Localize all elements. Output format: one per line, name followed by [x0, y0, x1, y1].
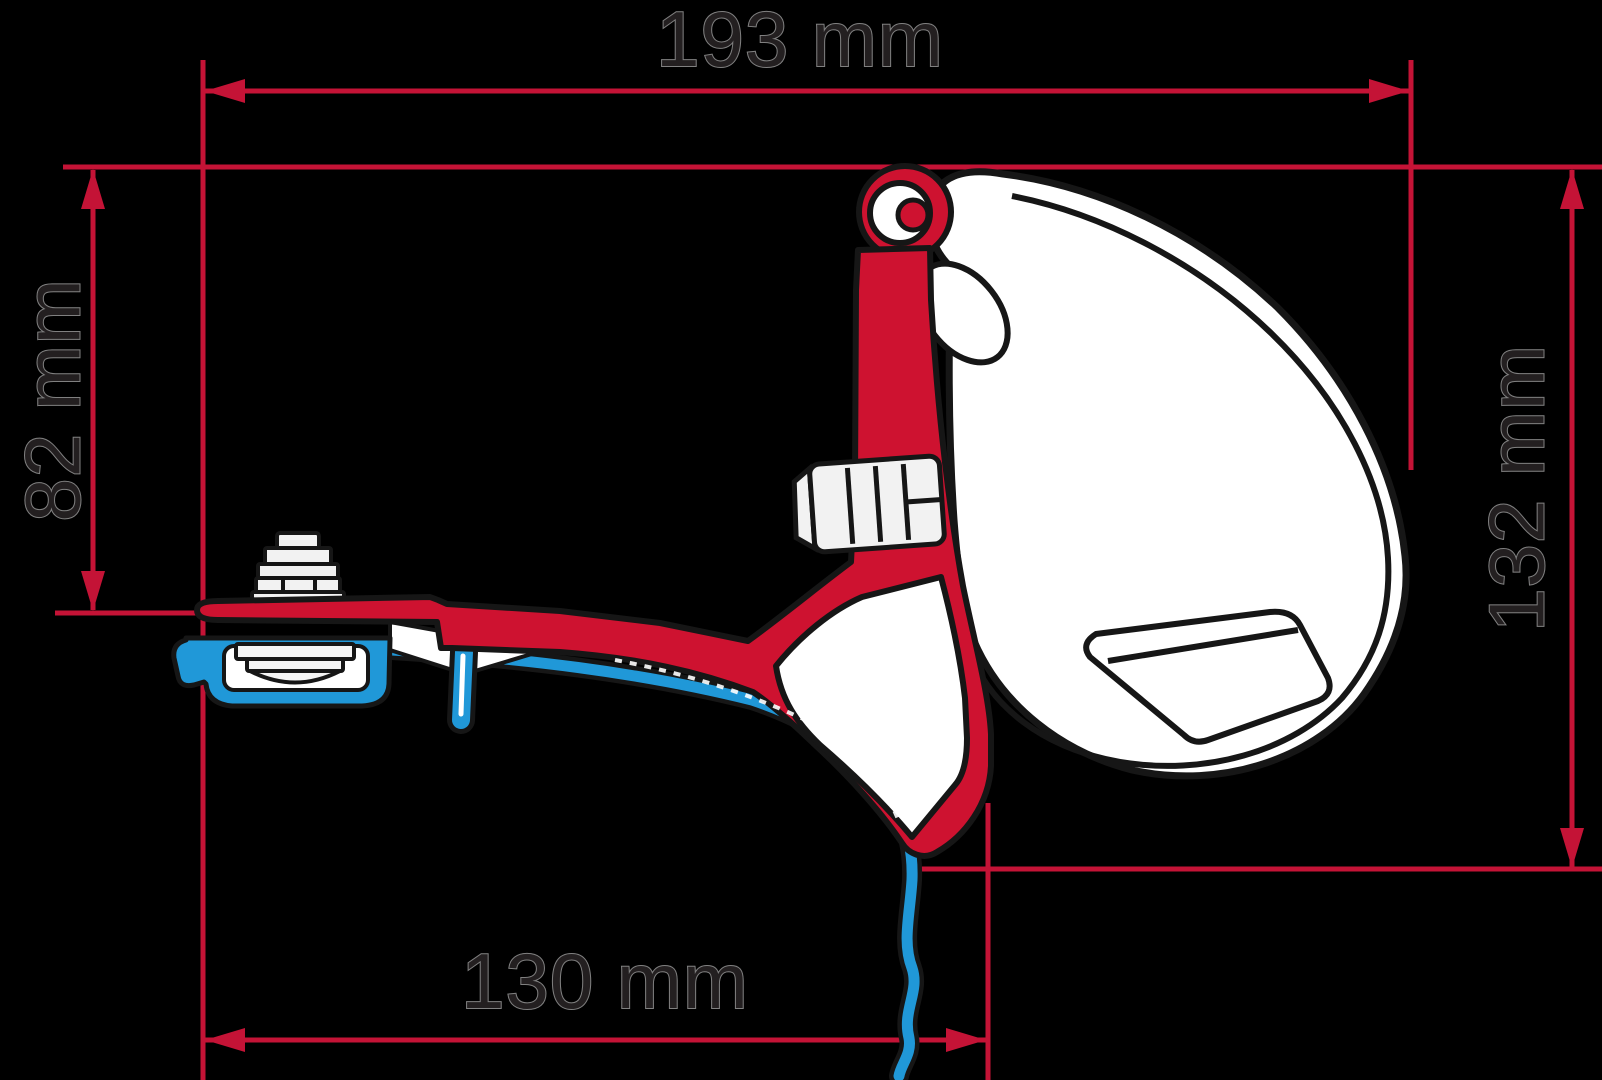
- adapter-dimension-diagram: 193 mm 82 mm 132 mm 130 mm: [0, 0, 1602, 1080]
- arrowhead-up-icon: [1560, 169, 1584, 209]
- arrowhead-right-icon: [1369, 79, 1409, 103]
- dimension-label-left: 82 mm: [8, 278, 96, 521]
- diagram-canvas: 193 mm 82 mm 132 mm 130 mm: [0, 0, 1602, 1080]
- dimension-130: [203, 1028, 988, 1052]
- awning-body: [929, 172, 1406, 776]
- dimension-label-top: 193 mm: [656, 0, 944, 83]
- arrowhead-right-icon: [946, 1028, 986, 1052]
- dimension-132: [1560, 169, 1584, 868]
- arrowhead-down-icon: [1560, 828, 1584, 868]
- dimension-label-right: 132 mm: [1472, 344, 1560, 632]
- dimension-label-bottom: 130 mm: [461, 937, 749, 1025]
- arrowhead-left-icon: [205, 1028, 245, 1052]
- rail-hanging-leg: [461, 652, 464, 720]
- arrowhead-up-icon: [81, 169, 105, 209]
- roof-rail-channel: [174, 638, 390, 706]
- rail-bolt-assembly: [252, 533, 344, 602]
- arrowhead-left-icon: [205, 79, 245, 103]
- arrowhead-down-icon: [81, 571, 105, 611]
- upright-bolt-assembly: [791, 456, 945, 554]
- profile-artwork: [174, 166, 1406, 1076]
